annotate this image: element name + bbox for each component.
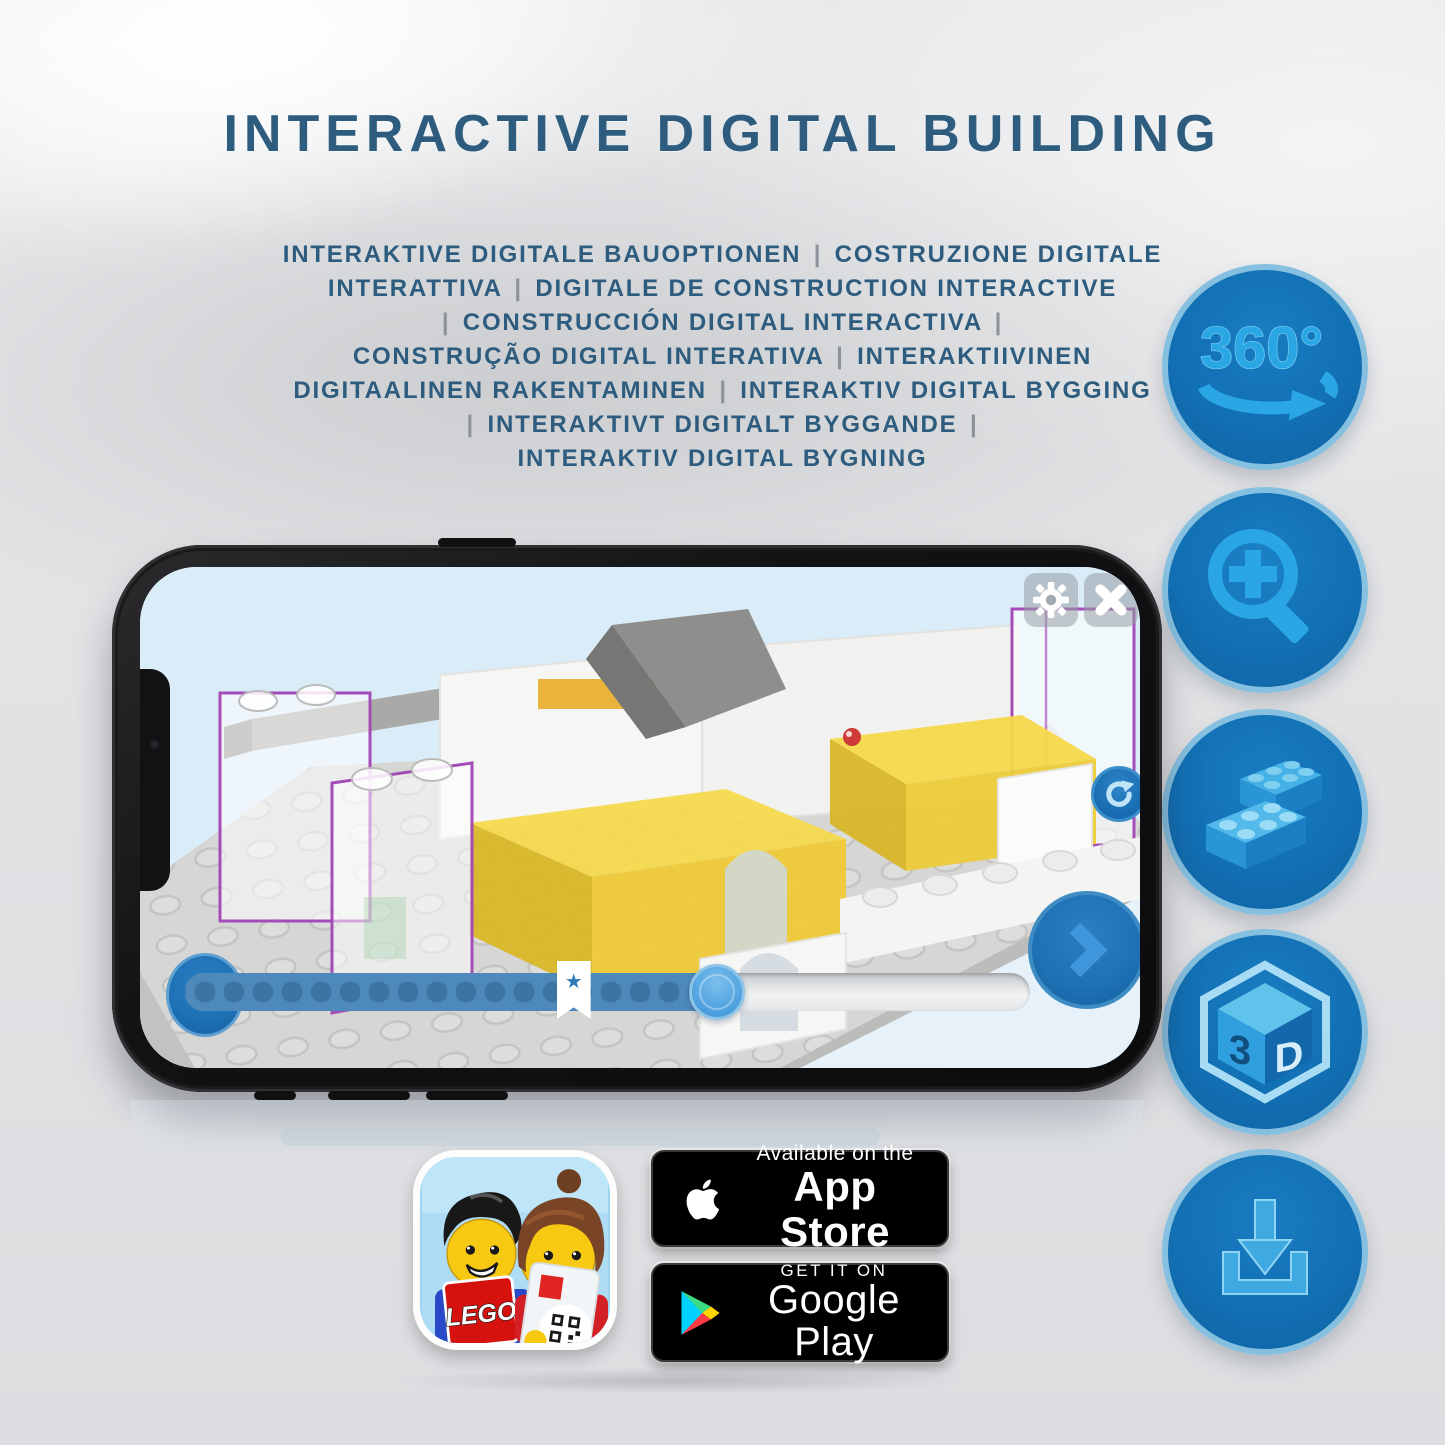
feature-bricks bbox=[1162, 709, 1368, 915]
cube-3-label: 3 bbox=[1229, 1025, 1251, 1075]
lego-app-artwork: LEGO bbox=[420, 1157, 610, 1343]
360-degrees-icon: 360° bbox=[1180, 292, 1350, 442]
smartphone: ★ bbox=[112, 545, 1162, 1092]
subtitle-line: INTERATTIVA | DIGITALE DE CONSTRUCTION I… bbox=[203, 272, 1243, 306]
3d-cube-icon: 3 D bbox=[1190, 957, 1340, 1107]
google-play-name: Google Play bbox=[731, 1279, 937, 1363]
chevron-right-icon bbox=[1065, 922, 1109, 978]
volume-up-button bbox=[328, 1091, 410, 1100]
subtitle-line: DIGITAALINEN RAKENTAMINEN | INTERAKTIV D… bbox=[203, 374, 1243, 408]
next-step-button[interactable] bbox=[1028, 891, 1140, 1009]
google-play-badge[interactable]: GET IT ON Google Play bbox=[651, 1263, 949, 1362]
lego-app-icon[interactable]: LEGO bbox=[413, 1150, 617, 1350]
multilanguage-subtitle: INTERAKTIVE DIGITALE BAUOPTIONEN | COSTR… bbox=[203, 238, 1243, 476]
download-badges: LEGO bbox=[413, 1150, 958, 1365]
google-play-logo-icon bbox=[669, 1289, 731, 1337]
volume-down-button bbox=[426, 1091, 508, 1100]
magnifier-plus-icon bbox=[1195, 520, 1335, 660]
360-label: 360° bbox=[1200, 314, 1323, 381]
subtitle-line: | CONSTRUCCIÓN DIGITAL INTERACTIVA | bbox=[203, 306, 1243, 340]
cube-d-label: D bbox=[1275, 1030, 1304, 1082]
phone-notch bbox=[140, 669, 170, 891]
app-store-tagline: Available on the bbox=[733, 1143, 937, 1165]
apple-logo-icon bbox=[671, 1172, 733, 1226]
page-title: INTERACTIVE DIGITAL BUILDING bbox=[0, 104, 1445, 164]
lego-bricks-icon bbox=[1190, 737, 1340, 887]
close-button[interactable] bbox=[1084, 573, 1138, 627]
feature-3d-view: 3 D bbox=[1162, 929, 1368, 1135]
badges-shadow bbox=[400, 1368, 960, 1394]
feature-zoom bbox=[1162, 487, 1368, 693]
subtitle-line: INTERAKTIV DIGITAL BYGNING bbox=[203, 442, 1243, 476]
feature-360-rotation: 360° bbox=[1162, 264, 1368, 470]
build-progress-slider[interactable]: ★ bbox=[185, 973, 1030, 1011]
gear-icon bbox=[1032, 581, 1070, 619]
subtitle-line: | INTERAKTIVT DIGITALT BYGGANDE | bbox=[203, 408, 1243, 442]
front-camera bbox=[149, 739, 160, 750]
power-button bbox=[438, 538, 516, 547]
feature-download bbox=[1162, 1149, 1368, 1355]
slider-knob[interactable] bbox=[689, 964, 745, 1020]
settings-button[interactable] bbox=[1024, 573, 1078, 627]
rotate-reset-icon bbox=[1102, 777, 1136, 811]
reset-rotation-button[interactable] bbox=[1091, 766, 1140, 822]
app-store-name: App Store bbox=[733, 1165, 937, 1253]
mute-switch bbox=[254, 1091, 296, 1100]
app-screen: ★ bbox=[140, 567, 1140, 1068]
google-play-tagline: GET IT ON bbox=[731, 1262, 937, 1280]
progress-fill bbox=[185, 973, 717, 1011]
subtitle-line: CONSTRUÇÃO DIGITAL INTERATIVA | INTERAKT… bbox=[203, 340, 1243, 374]
subtitle-line: INTERAKTIVE DIGITALE BAUOPTIONEN | COSTR… bbox=[203, 238, 1243, 272]
app-store-badge[interactable]: Available on the App Store bbox=[651, 1150, 949, 1247]
download-tray-icon bbox=[1195, 1182, 1335, 1322]
